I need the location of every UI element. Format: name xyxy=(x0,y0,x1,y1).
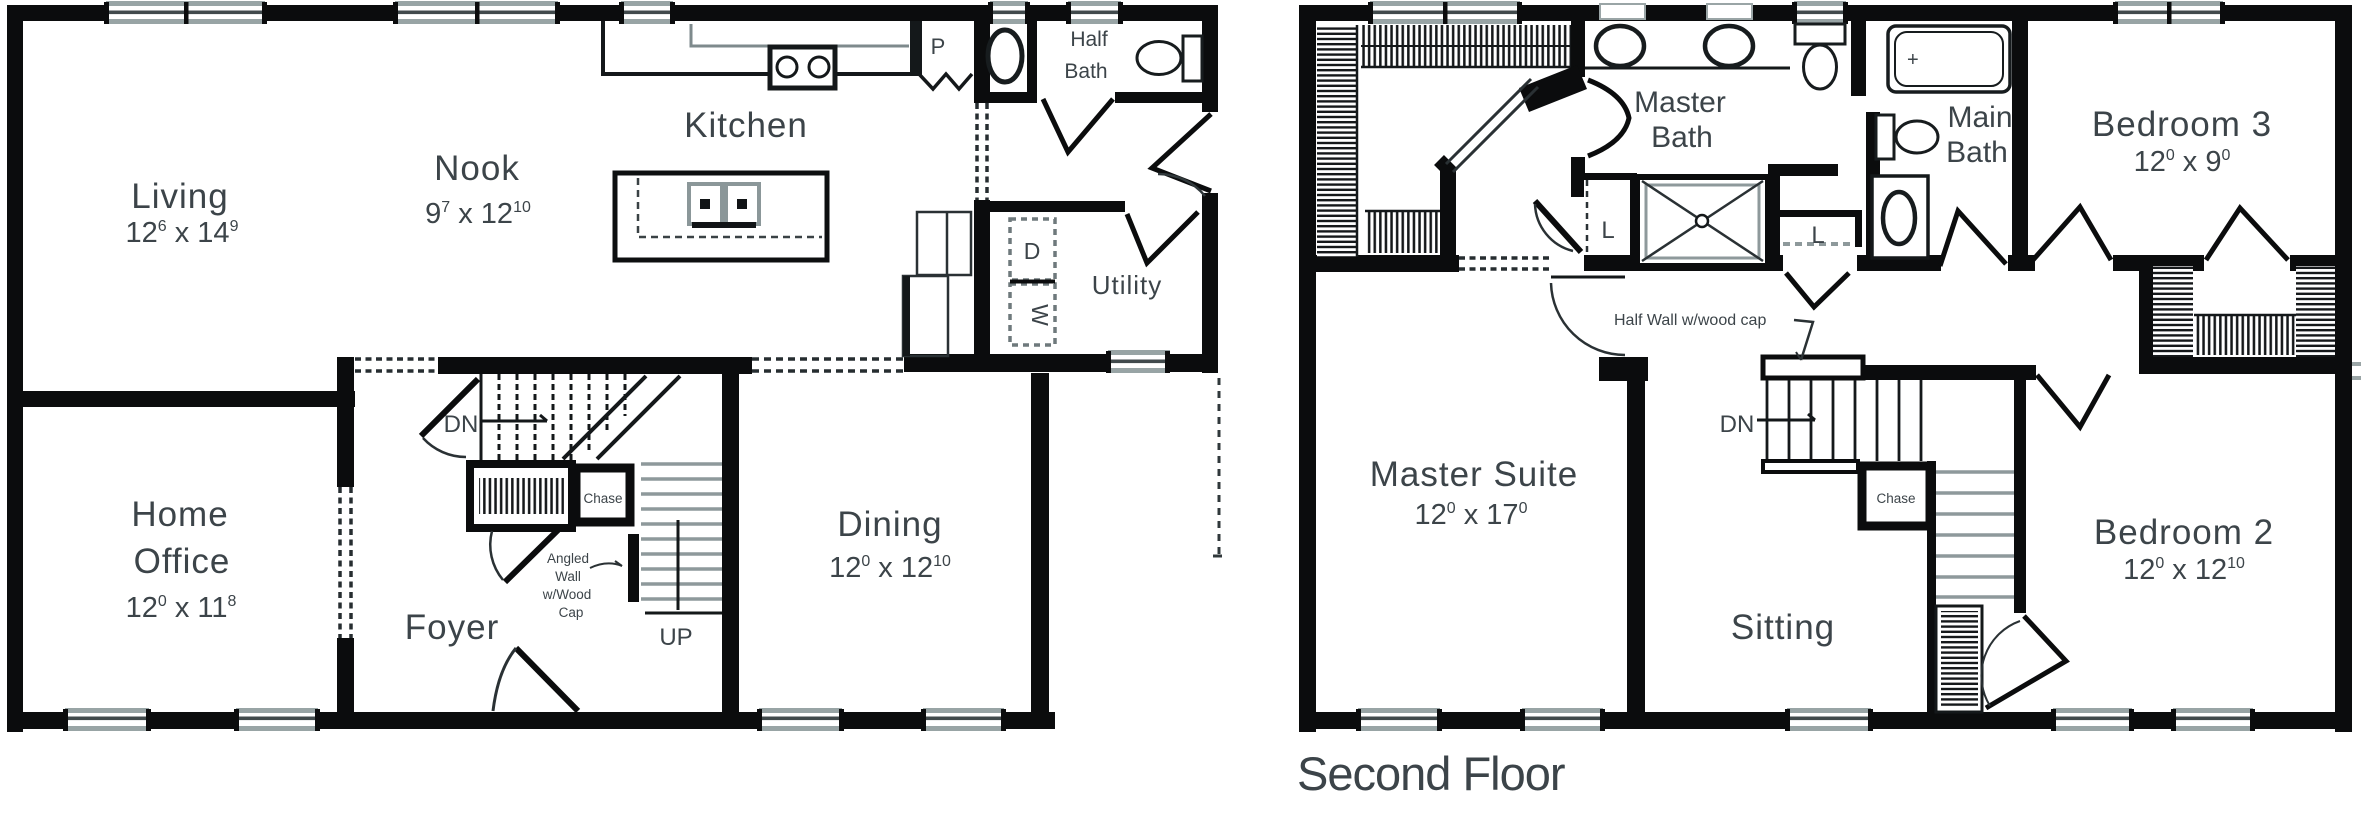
svg-text:Cap: Cap xyxy=(559,605,584,620)
svg-text:DN: DN xyxy=(1720,411,1755,438)
svg-text:Chase: Chase xyxy=(1876,491,1915,506)
svg-text:Wall: Wall xyxy=(555,569,581,584)
svg-text:120 x 90: 120 x 90 xyxy=(2134,146,2231,178)
svg-text:Angled: Angled xyxy=(547,551,589,566)
svg-text:w/Wood: w/Wood xyxy=(542,587,592,602)
svg-text:120 x 118: 120 x 118 xyxy=(126,592,237,624)
svg-text:Bath: Bath xyxy=(1946,136,2008,169)
svg-text:Master Suite: Master Suite xyxy=(1370,455,1578,494)
svg-text:Office: Office xyxy=(134,542,231,581)
svg-text:Home: Home xyxy=(131,495,228,534)
svg-text:Half Wall w/wood cap: Half Wall w/wood cap xyxy=(1614,312,1766,329)
svg-text:Bath: Bath xyxy=(1064,60,1107,83)
svg-text:Second Floor: Second Floor xyxy=(1297,747,1565,800)
svg-text:120 x 1210: 120 x 1210 xyxy=(829,552,951,584)
svg-text:120 x 1210: 120 x 1210 xyxy=(2123,554,2245,586)
svg-text:120 x 170: 120 x 170 xyxy=(1415,499,1528,531)
svg-text:Bedroom 2: Bedroom 2 xyxy=(2094,513,2274,552)
svg-text:Sitting: Sitting xyxy=(1731,608,1835,647)
svg-text:Bath: Bath xyxy=(1651,121,1713,154)
svg-text:126 x 149: 126 x 149 xyxy=(126,217,239,249)
svg-text:L: L xyxy=(1601,217,1614,244)
svg-text:Dining: Dining xyxy=(837,505,942,544)
svg-text:P: P xyxy=(931,34,946,59)
svg-text:Living: Living xyxy=(131,177,228,216)
svg-text:D: D xyxy=(1024,238,1041,264)
svg-text:UP: UP xyxy=(659,624,692,651)
svg-text:Utility: Utility xyxy=(1092,270,1163,300)
svg-text:DN: DN xyxy=(444,411,479,438)
svg-text:Master: Master xyxy=(1634,86,1726,119)
svg-text:+: + xyxy=(1907,49,1919,71)
svg-text:Chase: Chase xyxy=(583,491,622,506)
svg-text:Main: Main xyxy=(1947,101,2012,134)
svg-text:W: W xyxy=(1027,304,1053,326)
svg-text:Kitchen: Kitchen xyxy=(684,106,808,145)
svg-text:L: L xyxy=(1811,222,1824,249)
svg-text:Bedroom 3: Bedroom 3 xyxy=(2092,105,2272,144)
svg-text:Foyer: Foyer xyxy=(405,608,499,647)
svg-text:Nook: Nook xyxy=(434,149,520,188)
svg-text:Half: Half xyxy=(1070,28,1108,51)
